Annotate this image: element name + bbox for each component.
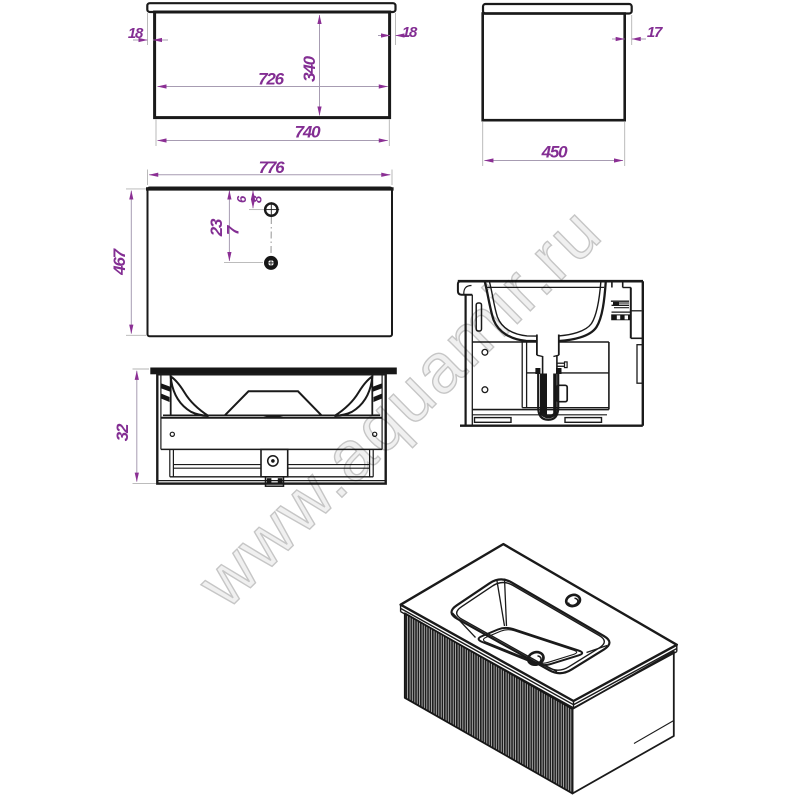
svg-text:450: 450 [541, 143, 569, 162]
svg-text:18: 18 [128, 25, 144, 42]
svg-text:18: 18 [402, 24, 418, 41]
svg-text:776: 776 [259, 158, 286, 177]
svg-text:17: 17 [647, 24, 663, 41]
svg-text:726: 726 [258, 70, 285, 89]
svg-text:467: 467 [110, 247, 129, 276]
svg-text:340: 340 [300, 55, 319, 82]
svg-text:32: 32 [113, 423, 132, 441]
svg-text:740: 740 [295, 123, 322, 142]
